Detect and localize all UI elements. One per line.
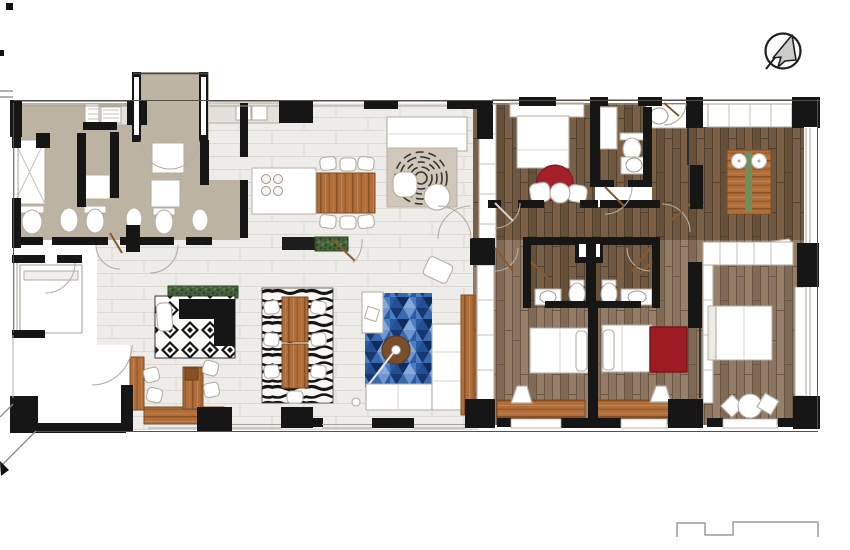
- zebra-chair: [263, 300, 280, 315]
- wall-powder-2: [186, 237, 212, 245]
- pedestal-sink-3: [192, 209, 208, 231]
- wall-bath-a: [36, 133, 50, 148]
- cooktop-burner: [274, 175, 283, 184]
- apartment-floor-plan: [0, 0, 850, 550]
- wall-dressing-left: [690, 165, 703, 209]
- wall-bath-b: [77, 133, 86, 207]
- laundry-sink: [101, 107, 121, 123]
- wall-twin-divider: [588, 303, 598, 425]
- wall-bottom-7: [707, 418, 723, 427]
- desk-wood-box: [185, 368, 198, 380]
- wall-twinbath-mid: [586, 240, 596, 308]
- dining-chair: [340, 216, 356, 229]
- wall-divider-mid: [470, 238, 495, 265]
- wall-small-room-top-a: [12, 255, 45, 263]
- dining-chair: [357, 214, 374, 229]
- desk-chair: [146, 387, 164, 404]
- wall-powder-1: [146, 237, 174, 245]
- arc-lamp-base: [352, 398, 360, 406]
- small-room-bed-headboard: [24, 271, 78, 280]
- wall-twinbath-left: [523, 240, 531, 308]
- wall-top-6: [590, 97, 608, 106]
- toilet-2-bowl: [86, 209, 104, 233]
- wall-divider-top: [477, 100, 493, 139]
- wall-twin2-master: [688, 262, 702, 328]
- wall-bath-d: [110, 132, 119, 198]
- window-sill-box: [723, 419, 777, 428]
- twin1-pillow: [576, 331, 587, 371]
- desk-chair: [203, 382, 220, 398]
- wall-twinbath-bottom-4: [655, 301, 660, 308]
- dining-chair: [319, 156, 336, 171]
- toilet-3-bowl: [155, 210, 173, 234]
- dining-chair: [340, 158, 356, 171]
- bedroom1-bed: [517, 116, 569, 168]
- wall-corridor-3: [600, 200, 660, 208]
- site-tick-mark: [0, 50, 4, 56]
- wall-bath1-right: [643, 107, 652, 184]
- dining-chair: [357, 156, 374, 171]
- bedroom1-round-table: [550, 183, 570, 203]
- twin1-wardrobe: [497, 400, 585, 418]
- wall-kitchen-1: [240, 103, 248, 157]
- dining-chair: [319, 214, 336, 229]
- cooktop-burner: [262, 187, 271, 196]
- site-tick-mark: [6, 3, 13, 10]
- bath1-shower: [600, 107, 617, 149]
- twin2-pillow: [603, 330, 614, 370]
- wall-bath1-left: [590, 140, 600, 187]
- wall-top-3: [364, 100, 398, 109]
- lounge-pouf-square: [393, 172, 417, 197]
- wall-top-2: [279, 100, 313, 123]
- wall-top-8: [686, 97, 703, 128]
- wall-twinbath-bottom-2: [545, 301, 586, 308]
- wall-entry-side: [200, 140, 209, 185]
- wall-bottom-step: [197, 407, 232, 432]
- wall-top-right-corner: [792, 97, 820, 128]
- wall-bottom-right-corner: [793, 396, 820, 429]
- twin2-red-rug: [650, 327, 687, 372]
- window-sill-box: [621, 419, 667, 428]
- wall-bath-bottom-1: [13, 237, 43, 245]
- wall-kitchen-2: [240, 180, 248, 238]
- wall-bottom-8: [778, 418, 795, 427]
- wall-top-7: [638, 97, 662, 106]
- entry-jamb-inner-white: [201, 77, 206, 135]
- wall-corridor-1: [518, 200, 544, 208]
- wall-twinbath-right: [652, 240, 660, 308]
- zebra-console-top: [282, 297, 308, 342]
- zebra-chair: [310, 364, 326, 378]
- wall-bottom-2b: [313, 418, 323, 427]
- wall-small-room-bottom: [12, 330, 45, 338]
- zebra-chair: [310, 300, 327, 315]
- wall-bath-bottom-2: [52, 237, 108, 245]
- wall-bottom-2: [281, 407, 313, 428]
- window-sill-box: [511, 419, 561, 428]
- entry-jamb-inner-white: [134, 77, 139, 135]
- master-headboard: [708, 306, 716, 360]
- wall-bottom-left-corner: [10, 396, 38, 433]
- kitchen-sink-right: [252, 106, 267, 120]
- pedestal-sink-1: [60, 208, 78, 232]
- wall-twinbath-bottom-1: [523, 301, 531, 308]
- living-sofa-right: [432, 324, 462, 410]
- powder-shower: [151, 180, 180, 207]
- desk-chair: [143, 366, 161, 383]
- wall-divider-bottom: [465, 399, 495, 428]
- lounge-pouf-round: [424, 184, 450, 210]
- living-sofa-bottom: [366, 384, 432, 410]
- bath-cabinet: [85, 175, 110, 199]
- wall-twinbath-top-right: [603, 237, 660, 245]
- zebra-console-bottom: [282, 344, 308, 388]
- master-top-closet: [703, 242, 793, 265]
- wall-small-room-top-b: [57, 255, 82, 263]
- zebra-chair: [310, 332, 326, 347]
- dressing-stool-dot: [758, 160, 761, 163]
- wall-corridor-2: [580, 200, 598, 208]
- cooktop-burner: [274, 187, 283, 196]
- toilet-1-bowl: [22, 210, 42, 234]
- wall-bath1-bottom-1: [600, 180, 614, 187]
- floor-corridor-wood: [473, 207, 703, 240]
- divider-tv-wall-wood: [461, 295, 475, 415]
- zebra-chair: [263, 332, 279, 346]
- wall-bottom-4: [497, 418, 511, 427]
- zebra-chair: [264, 364, 280, 378]
- wall-bath-bottom-3: [120, 237, 148, 245]
- wall-desk-corner: [121, 385, 133, 432]
- wall-bottom-3: [372, 418, 414, 428]
- zebra-chair: [287, 391, 303, 403]
- white-chaise: [156, 302, 173, 331]
- wall-bath-c: [83, 122, 117, 130]
- planter-box-dark: [282, 237, 315, 250]
- dining-table: [317, 173, 375, 213]
- wall-right-mid: [797, 243, 819, 287]
- wall-top-5: [519, 97, 556, 106]
- wall-bottom-6: [668, 399, 703, 428]
- floor-plan-page: [0, 0, 850, 550]
- dressing-stool-dot: [738, 160, 741, 163]
- cooktop-burner: [262, 175, 271, 184]
